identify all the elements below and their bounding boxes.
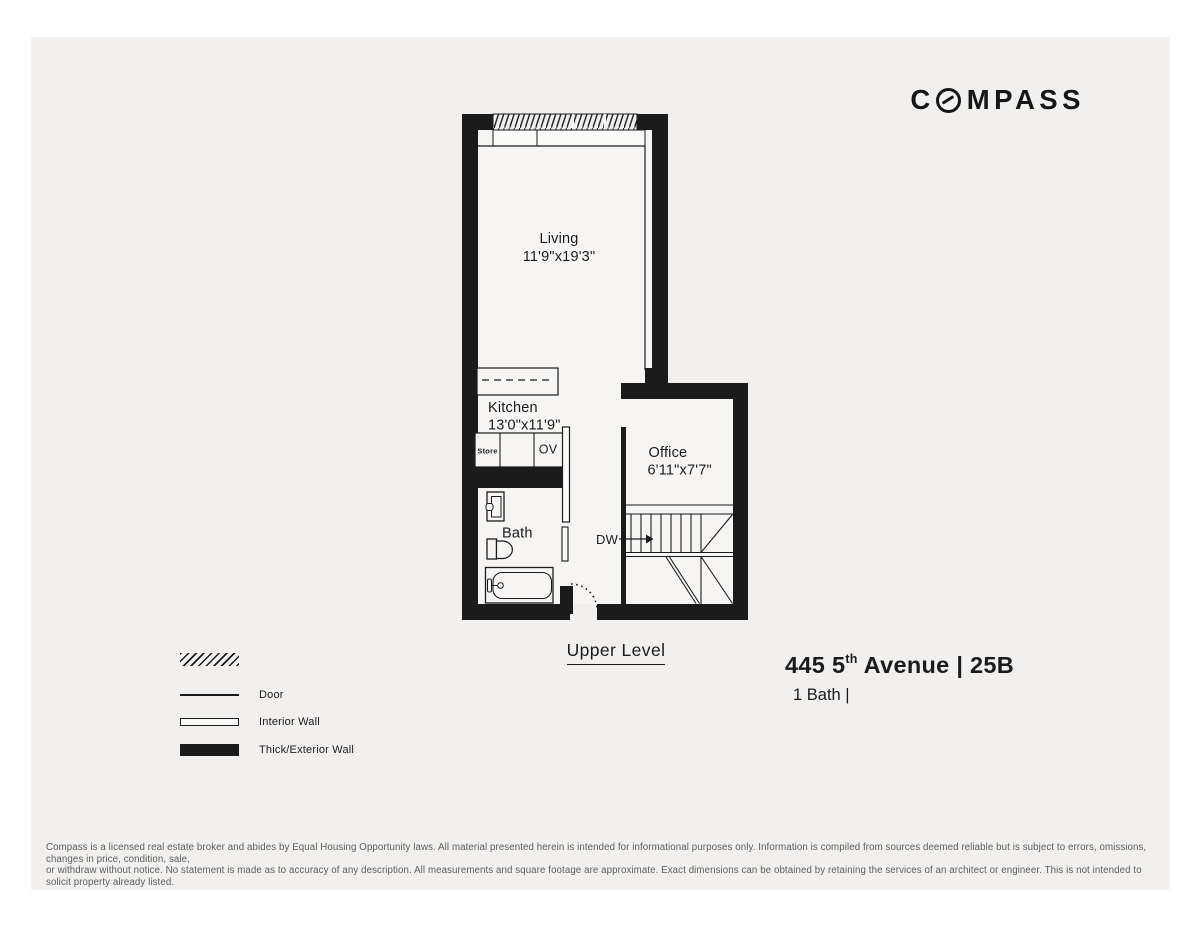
level-label: Upper Level <box>567 640 666 665</box>
address-suffix: Avenue | 25B <box>858 652 1014 678</box>
legend-row-interior-wall: Interior Wall <box>180 715 354 729</box>
disclaimer-line-1: Compass is a licensed real estate broker… <box>46 842 1158 865</box>
address-prefix: 445 5 <box>785 652 845 678</box>
interior-wall-bath <box>563 427 570 522</box>
sink-icon <box>486 492 504 521</box>
exterior-wall-swatch <box>180 744 239 756</box>
compass-needle-icon <box>936 88 961 113</box>
disclaimer: Compass is a licensed real estate broker… <box>46 842 1158 888</box>
office-label: Office <box>649 445 688 461</box>
door-line-swatch <box>180 694 239 697</box>
bath-door-leaf <box>562 527 568 561</box>
kitchen-dims: 13'0"x11'9" <box>488 418 561 434</box>
logo-text-prefix: C <box>910 84 934 116</box>
window-hatch-swatch <box>180 653 239 666</box>
disclaimer-line-2: or withdraw without notice. No statement… <box>46 865 1158 888</box>
legend-label-interior-wall: Interior Wall <box>259 716 320 728</box>
floor-plan: Living 11'9"x19'3" Kitchen 13'0"x11'9" O… <box>455 108 765 624</box>
legend-row-window <box>180 652 354 666</box>
kitchen-label: Kitchen <box>488 400 538 416</box>
address: 445 5th Avenue | 25B <box>785 652 1014 679</box>
office-dims: 6'11"x7'7" <box>648 463 712 479</box>
compass-logo: C MPASS <box>910 84 1085 116</box>
address-superscript: th <box>845 652 857 666</box>
living-dims: 11'9"x19'3" <box>523 249 596 265</box>
logo-text-suffix: MPASS <box>967 84 1085 116</box>
level-caption: Upper Level <box>466 640 766 665</box>
legend: Door Interior Wall Thick/Exterior Wall <box>180 652 354 770</box>
bath-count: 1 Bath | <box>785 686 1014 705</box>
interior-wall-swatch <box>180 718 239 726</box>
legend-label-door: Door <box>259 689 284 701</box>
legend-row-exterior-wall: Thick/Exterior Wall <box>180 743 354 757</box>
bath-label: Bath <box>502 526 533 542</box>
window-hatch <box>493 114 637 130</box>
listing-title: 445 5th Avenue | 25B 1 Bath | <box>785 652 1014 705</box>
window-sill <box>493 130 645 146</box>
store-label: Store <box>477 447 497 456</box>
bathtub-icon <box>486 568 554 604</box>
oven-label: OV <box>539 443 558 457</box>
living-label: Living <box>539 231 578 247</box>
legend-label-exterior-wall: Thick/Exterior Wall <box>259 744 354 756</box>
kitchen-counter <box>477 368 558 395</box>
dw-label: DW <box>596 532 619 547</box>
legend-row-door: Door <box>180 688 354 702</box>
